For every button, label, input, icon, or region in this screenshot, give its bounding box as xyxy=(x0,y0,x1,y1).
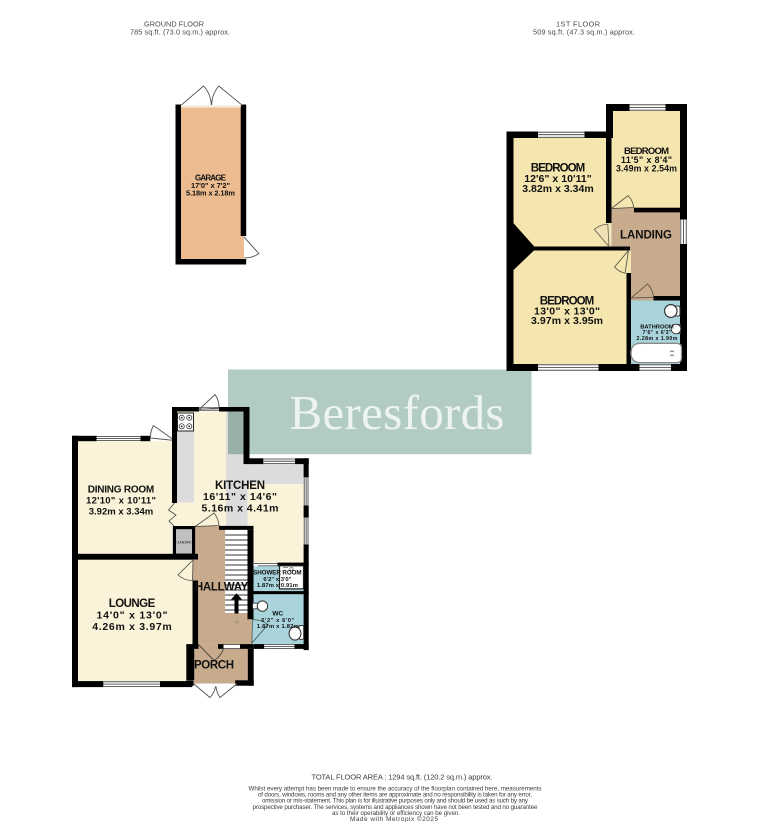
svg-text:1.87m x 0.91m: 1.87m x 0.91m xyxy=(257,583,298,589)
svg-text:DINING ROOM: DINING ROOM xyxy=(88,485,155,496)
svg-text:Beresfords: Beresfords xyxy=(290,385,505,440)
svg-text:HALLWAY: HALLWAY xyxy=(195,582,249,594)
svg-text:3.97m x 3.95m: 3.97m x 3.95m xyxy=(531,315,603,327)
svg-text:PORCH: PORCH xyxy=(194,660,234,672)
svg-text:14'0" x 13'0": 14'0" x 13'0" xyxy=(97,610,168,622)
svg-text:16'11" x 14'6": 16'11" x 14'6" xyxy=(203,491,277,503)
svg-text:Made with Metropix ©2025: Made with Metropix ©2025 xyxy=(350,815,438,822)
svg-text:KITCHEN: KITCHEN xyxy=(215,480,265,492)
svg-text:509 sq.ft. (47.3 sq.m.) approx: 509 sq.ft. (47.3 sq.m.) approx. xyxy=(533,28,635,37)
svg-text:SHOWER ROOM: SHOWER ROOM xyxy=(253,570,302,577)
svg-text:up: up xyxy=(234,619,240,624)
svg-text:LANDING: LANDING xyxy=(620,230,672,242)
svg-text:3.92m x 3.34m: 3.92m x 3.34m xyxy=(89,507,154,518)
svg-text:CUPBOARD: CUPBOARD xyxy=(177,541,193,545)
svg-text:5.16m x 4.41m: 5.16m x 4.41m xyxy=(202,503,279,515)
svg-text:5.18m x 2.18m: 5.18m x 2.18m xyxy=(186,188,235,197)
svg-text:WC: WC xyxy=(272,610,283,617)
svg-text:3.49m x 2.54m: 3.49m x 2.54m xyxy=(616,164,677,174)
svg-text:2.28m x 1.90m: 2.28m x 1.90m xyxy=(637,336,678,342)
svg-text:4.26m x 3.97m: 4.26m x 3.97m xyxy=(92,621,172,633)
svg-text:12'10" x 10'11": 12'10" x 10'11" xyxy=(86,496,156,507)
svg-text:1.87m x 1.82m: 1.87m x 1.82m xyxy=(257,624,299,630)
svg-text:3.82m x 3.34m: 3.82m x 3.34m xyxy=(522,183,594,195)
svg-text:TOTAL FLOOR AREA : 1294 sq.ft.: TOTAL FLOOR AREA : 1294 sq.ft. (120.2 sq… xyxy=(312,772,493,781)
svg-text:LOUNGE: LOUNGE xyxy=(109,598,156,610)
svg-text:785 sq.ft. (73.0 sq.m.) approx: 785 sq.ft. (73.0 sq.m.) approx. xyxy=(130,28,230,37)
